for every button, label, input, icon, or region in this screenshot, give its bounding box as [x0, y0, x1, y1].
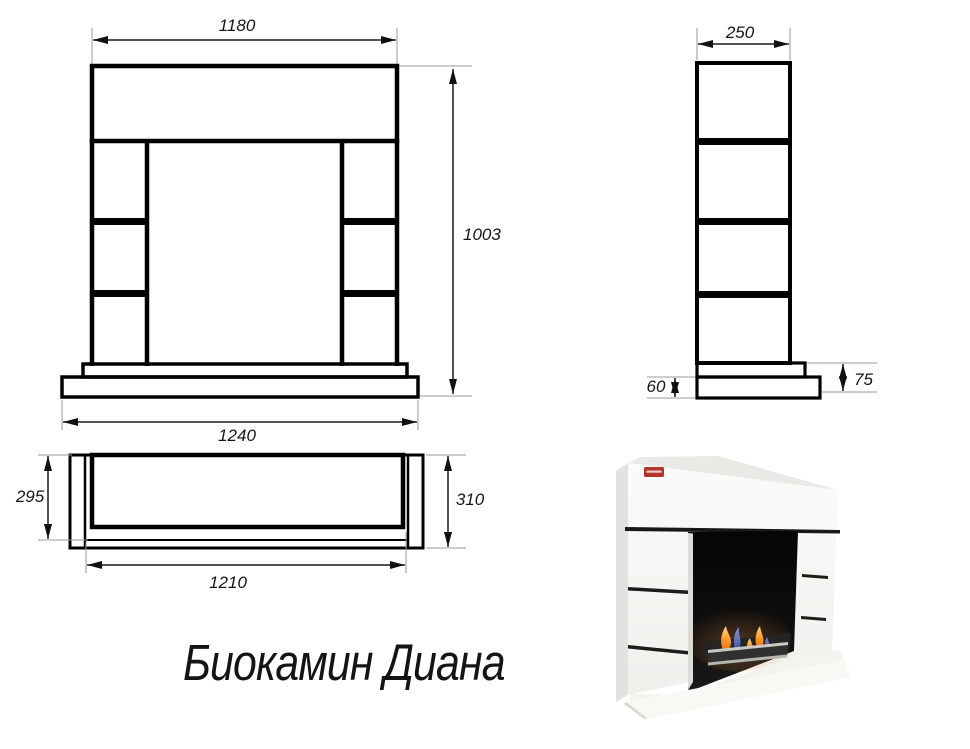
product-photo: [600, 430, 970, 749]
front-left-column-outline: [90, 139, 149, 366]
drawing-canvas: 1180 1003: [0, 0, 970, 749]
front-view-drawing: 1180 1003: [0, 0, 520, 450]
top-view-outline: [70, 455, 423, 548]
top-dim-inner-depth-label: 295: [15, 487, 45, 506]
front-dim-base-width: 1240: [62, 400, 418, 445]
top-view-drawing: 295 310 1210: [0, 440, 520, 620]
photo-left-side-face: [616, 463, 628, 702]
front-dim-top-width: 1180: [92, 16, 397, 64]
side-column-outline: [695, 63, 792, 363]
front-plinth-step-outline: [83, 364, 407, 377]
photo-firebox-inner-edge: [688, 533, 693, 690]
side-view-drawing: 250 60 75: [590, 0, 970, 450]
side-dim-top-depth: 250: [697, 23, 790, 60]
side-plinth-base-outline: [697, 377, 820, 398]
front-dim-height: 1003: [399, 66, 501, 396]
front-mantel-outline: [92, 66, 397, 141]
top-dim-outer-depth-label: 310: [456, 490, 485, 509]
side-dim-plinth-total-label: 75: [854, 370, 873, 389]
top-dim-outer-depth: 310: [426, 455, 485, 548]
brand-logo-badge: [644, 467, 664, 477]
top-dim-inner-width-label: 1210: [209, 573, 247, 592]
front-plinth-base-outline: [62, 377, 418, 397]
side-dim-plinth-lower-label: 60: [647, 377, 666, 396]
drawing-title: Биокамин Диана: [183, 633, 505, 692]
side-plinth-step-outline: [697, 363, 805, 377]
top-view-inner-shelf-outline: [92, 455, 403, 527]
top-dim-inner-depth: 295: [15, 455, 88, 540]
front-dim-height-label: 1003: [463, 225, 501, 244]
front-dim-top-width-label: 1180: [219, 16, 256, 35]
side-dim-top-depth-label: 250: [725, 23, 755, 42]
side-dim-plinth-lower: 60: [647, 377, 695, 398]
front-right-column-outline: [340, 139, 399, 366]
